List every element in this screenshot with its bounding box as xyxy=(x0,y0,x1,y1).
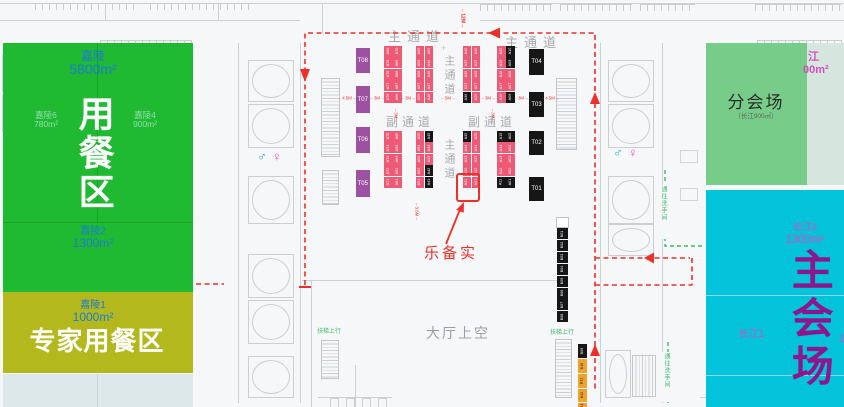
escalator xyxy=(556,78,577,150)
booth-A13[interactable]: A13 xyxy=(497,154,506,165)
booth-A03[interactable]: A03 xyxy=(506,154,515,165)
dimension-marker: ←3M→ xyxy=(510,97,532,101)
booth-A50[interactable]: A50 xyxy=(425,46,434,57)
building-outline xyxy=(480,20,844,21)
building-outline xyxy=(322,3,323,33)
booth-B09[interactable]: B09 xyxy=(578,344,587,358)
room-jialing6-area: 780m² xyxy=(16,120,76,129)
booth-A34[interactable]: A34 xyxy=(463,142,472,153)
booth-A47[interactable]: A47 xyxy=(425,80,434,91)
building-outline xyxy=(105,3,106,20)
dimension-marker: ←5M→ xyxy=(437,97,459,101)
booth-B12[interactable]: B12 xyxy=(578,389,587,403)
escalator xyxy=(321,78,340,157)
booth-A33[interactable]: A33 xyxy=(463,154,472,165)
hall-edge xyxy=(311,280,312,407)
booth-A51[interactable]: A51 xyxy=(416,177,425,188)
dimension-marker: ←3M→ xyxy=(477,97,499,101)
booth-A57[interactable]: A57 xyxy=(416,80,425,91)
column-bump xyxy=(378,398,387,407)
escalator xyxy=(322,170,339,205)
booth-A70[interactable]: A70 xyxy=(393,46,402,57)
stair-core xyxy=(632,355,656,397)
booth-A48[interactable]: A48 xyxy=(425,69,434,80)
booth-A37[interactable]: A37 xyxy=(463,80,472,91)
booth-T05[interactable]: T05 xyxy=(356,170,370,197)
booth-A01[interactable]: A01 xyxy=(506,177,515,188)
booth-A08[interactable]: A08 xyxy=(506,69,515,80)
elevator xyxy=(608,60,654,102)
core-wall xyxy=(600,43,601,403)
booth-A73[interactable]: A73 xyxy=(384,154,393,165)
changjiang-partial-1: 江 xyxy=(808,51,819,63)
escalator xyxy=(555,339,572,398)
female-restroom-icon: ♀ xyxy=(272,150,282,164)
female-restroom-icon: ♀ xyxy=(628,146,638,160)
wall-zigzag xyxy=(35,3,140,10)
booth-T06[interactable]: T06 xyxy=(356,127,370,153)
column-bump xyxy=(346,398,355,407)
booth-A18[interactable]: A18 xyxy=(497,69,506,80)
booth-T04[interactable]: T04 xyxy=(529,49,544,75)
escalator-up-label-left: 扶梯上行 xyxy=(317,329,341,336)
booth-B01[interactable]: B01 xyxy=(557,228,569,239)
booth-A59[interactable]: A59 xyxy=(416,57,425,68)
wall-zigzag xyxy=(150,3,255,10)
elevator xyxy=(248,300,294,344)
booth-A72[interactable]: A72 xyxy=(384,165,393,176)
booth-A30[interactable]: A30 xyxy=(472,46,481,57)
booth-B10[interactable]: B10 xyxy=(578,359,587,373)
expert-dining-title: 专家用餐区 xyxy=(8,327,186,356)
booth-A62[interactable]: A62 xyxy=(393,165,402,176)
elevator xyxy=(248,356,294,398)
elevator xyxy=(248,176,294,224)
booth-A11[interactable]: A11 xyxy=(497,177,506,188)
room-changjiang2-area: 1300m² xyxy=(772,234,838,247)
booth-A10[interactable]: A10 xyxy=(506,46,515,57)
elevator xyxy=(248,104,294,148)
booth-A14[interactable]: A14 xyxy=(497,142,506,153)
booth-A36[interactable]: A36 xyxy=(463,92,472,103)
elevator xyxy=(605,350,631,398)
booth-A60[interactable]: A60 xyxy=(416,46,425,57)
room-jialing2-area: 1300m² xyxy=(58,237,128,250)
sub-venue-detail: （长江900㎡） xyxy=(716,113,796,120)
booth-A52[interactable]: A52 xyxy=(416,165,425,176)
booth-A02[interactable]: A02 xyxy=(506,165,515,176)
booth-B13[interactable]: B13 xyxy=(578,403,587,407)
building-outline xyxy=(0,20,300,21)
booth-A64[interactable]: A64 xyxy=(393,142,402,153)
highlight-exhibitor-label: 乐备实 xyxy=(424,246,478,263)
booth-T08[interactable]: T08 xyxy=(356,48,370,73)
booth-A65[interactable]: A65 xyxy=(393,131,402,142)
edge-fragment: 1 xyxy=(839,333,844,345)
annotation-arrow xyxy=(446,202,464,244)
booth-A27[interactable]: A27 xyxy=(472,80,481,91)
booth-A07[interactable]: A07 xyxy=(506,80,515,91)
main-aisle-label-top-left: 主通道 xyxy=(388,26,445,45)
booth-A63[interactable]: A63 xyxy=(393,154,402,165)
dimension-marker: ←3M→ xyxy=(366,97,388,101)
booth-A28[interactable]: A28 xyxy=(472,69,481,80)
booth-A40[interactable]: A40 xyxy=(463,46,472,57)
escalator-up-label-right: 扶梯上行 xyxy=(550,330,574,337)
escalator xyxy=(321,340,339,379)
elevator xyxy=(608,224,654,256)
dining-area-title: 用餐区 xyxy=(74,95,114,212)
hall-void-label: 大厅上空 xyxy=(426,326,490,341)
aisle-width-marker: ←3.5M→ xyxy=(414,202,418,219)
booth-B04[interactable]: B04 xyxy=(557,264,569,275)
wall-zigzag xyxy=(560,4,632,11)
room-jialing4-area: 900m² xyxy=(115,120,175,129)
booth-A44[interactable]: A44 xyxy=(425,142,434,153)
wall-zigzag xyxy=(755,4,841,11)
booth-A67[interactable]: A67 xyxy=(393,80,402,91)
booth-empty[interactable] xyxy=(556,217,569,228)
booth-A35[interactable]: A35 xyxy=(463,131,472,142)
main-venue-title: 主会场 xyxy=(786,248,832,392)
dimension-marker: ←4.5M→ xyxy=(336,97,358,101)
booth-A15[interactable]: A15 xyxy=(497,131,506,142)
side-room xyxy=(680,150,698,163)
booth-B11[interactable]: B11 xyxy=(578,374,587,388)
aisle-width-marker: ←3M→ xyxy=(393,108,397,124)
top-dimension-12m: ←12M→ xyxy=(460,8,465,30)
booth-A43[interactable]: A43 xyxy=(425,154,434,165)
building-outline xyxy=(218,3,219,20)
male-restroom-icon: ♂ xyxy=(613,146,623,160)
core-wall xyxy=(300,43,301,403)
booth-A42[interactable]: A42 xyxy=(425,165,434,176)
elevator xyxy=(248,60,294,102)
booth-A69[interactable]: A69 xyxy=(393,57,402,68)
to-restroom-label-bottom: 通往洗手间 xyxy=(662,352,671,402)
core-wall xyxy=(238,43,239,403)
booth-A09[interactable]: A09 xyxy=(506,57,515,68)
booth-A78[interactable]: A78 xyxy=(384,69,393,80)
wall-zigzag xyxy=(480,4,552,11)
booth-A54[interactable]: A54 xyxy=(416,142,425,153)
booth-A39[interactable]: A39 xyxy=(463,57,472,68)
booth-A20[interactable]: A20 xyxy=(497,46,506,57)
booth-A46[interactable]: A46 xyxy=(425,92,434,103)
main-aisle-label-center-bottom: 主通道 xyxy=(441,139,457,181)
hall-area: 5800m² xyxy=(53,62,133,77)
elevator xyxy=(608,104,654,148)
booth-B05[interactable]: B05 xyxy=(557,276,569,287)
booth-A68[interactable]: A68 xyxy=(393,69,402,80)
booth-B08[interactable]: B08 xyxy=(557,311,569,322)
dimension-marker: ←3M→ xyxy=(397,97,419,101)
booth-A77[interactable]: A77 xyxy=(384,80,393,91)
booth-A49[interactable]: A49 xyxy=(425,57,434,68)
booth-A24[interactable]: A24 xyxy=(472,142,481,153)
booth-B06[interactable]: B06 xyxy=(557,288,569,299)
zone-divider xyxy=(3,222,193,223)
to-restroom-label-top: 通往洗手间 xyxy=(659,185,668,239)
room-jialing1-area: 1000m² xyxy=(58,311,128,324)
zone-divider xyxy=(97,374,98,407)
booth-A41[interactable]: A41 xyxy=(425,177,434,188)
hall-edge xyxy=(302,280,557,281)
booth-T01[interactable]: T01 xyxy=(529,177,544,201)
aisle-width-marker: ←3M→ xyxy=(490,108,494,124)
male-restroom-icon: ♂ xyxy=(257,150,267,164)
booth-T03[interactable]: T03 xyxy=(529,92,544,117)
booth-B02[interactable]: B02 xyxy=(557,240,569,251)
booth-A74[interactable]: A74 xyxy=(384,142,393,153)
booth-A61[interactable]: A61 xyxy=(393,177,402,188)
floor-plan-canvas: ♂ ♀ ♂ ♀ + 嘉陵 5800m² 嘉陵6 780m² 嘉陵4 900m² … xyxy=(0,0,844,407)
booth-A58[interactable]: A58 xyxy=(416,69,425,80)
sub-venue-title: 分会场 xyxy=(716,94,796,113)
booth-A05[interactable]: A05 xyxy=(506,131,515,142)
booth-A04[interactable]: A04 xyxy=(506,142,515,153)
column-bump xyxy=(362,398,371,407)
booth-A29[interactable]: A29 xyxy=(472,57,481,68)
highlight-box-a31[interactable] xyxy=(456,173,480,202)
booth-A53[interactable]: A53 xyxy=(416,154,425,165)
booth-A38[interactable]: A38 xyxy=(463,69,472,80)
elevator xyxy=(608,176,654,224)
booth-B07[interactable]: B07 xyxy=(557,299,569,310)
booth-A75[interactable]: A75 xyxy=(384,131,393,142)
booth-A45[interactable]: A45 xyxy=(425,131,434,142)
room-changjiang2-name: 长江2 xyxy=(775,223,835,233)
dimension-marker: ←4.5M→ xyxy=(539,97,561,101)
booth-A25[interactable]: A25 xyxy=(472,131,481,142)
zone-lower-left xyxy=(3,374,193,407)
booth-A19[interactable]: A19 xyxy=(497,57,506,68)
changjiang-partial-2: 00m² xyxy=(803,64,829,76)
elevator xyxy=(248,254,294,298)
main-aisle-label-center-top: 主通道 xyxy=(441,55,457,97)
booth-A79[interactable]: A79 xyxy=(384,57,393,68)
wall-zigzag xyxy=(640,4,695,11)
booth-A71[interactable]: A71 xyxy=(384,177,393,188)
booth-A12[interactable]: A12 xyxy=(497,165,506,176)
booth-A80[interactable]: A80 xyxy=(384,46,393,57)
booth-A23[interactable]: A23 xyxy=(472,154,481,165)
booth-B03[interactable]: B03 xyxy=(557,252,569,263)
hall-edge xyxy=(355,365,356,407)
side-room xyxy=(680,188,698,201)
booth-A17[interactable]: A17 xyxy=(497,80,506,91)
room-changjiang1-name: 长江1 xyxy=(724,329,779,340)
column-bump xyxy=(330,398,339,407)
booth-T02[interactable]: T02 xyxy=(529,131,544,155)
grid-cross: + xyxy=(441,44,446,54)
booth-A55[interactable]: A55 xyxy=(416,131,425,142)
